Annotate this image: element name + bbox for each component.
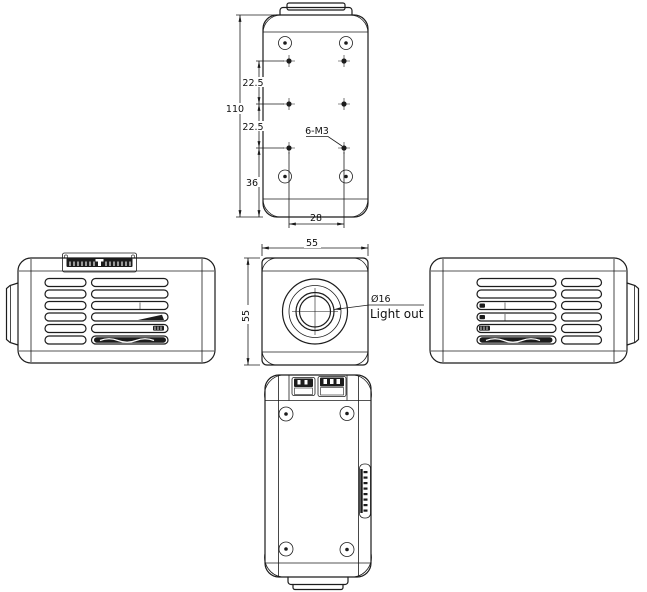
dim-110: 110 (226, 104, 244, 115)
front-view: 55 55 Ø16 Light out (241, 238, 424, 365)
chamfer-lines (265, 376, 371, 576)
m3-hole (283, 55, 295, 67)
lens-cap-outline (287, 3, 345, 10)
light-out-label: Light out (370, 307, 424, 321)
right-side-view (430, 258, 639, 363)
vent-slots (477, 279, 602, 345)
left-side-view (7, 253, 216, 363)
top-view-dimensions: 110 22.5 22.5 36 28 6-M3 (226, 15, 344, 228)
lens-bump (627, 283, 639, 345)
thread-callout: 6-M3 (305, 126, 329, 137)
lens-bump (7, 283, 19, 345)
dim-22-5-a: 22.5 (242, 78, 263, 89)
lens-cap-outline (293, 585, 343, 590)
screw-holes (279, 407, 354, 557)
dim-55-height: 55 (241, 310, 252, 322)
chamfer-lines (431, 259, 626, 362)
dim-22-5-b: 22.5 (242, 122, 263, 133)
vent-internal-details (94, 303, 166, 343)
light-aperture (283, 279, 348, 344)
lens-base-outline (288, 577, 348, 585)
bottom-view (265, 375, 372, 590)
vent-internal-details (479, 303, 553, 343)
m3-hole (338, 55, 350, 67)
right-view-body (430, 258, 627, 363)
m3-hole (338, 98, 350, 110)
lens-base-outline (280, 8, 352, 16)
bottom-view-body (265, 375, 371, 577)
dim-55-width: 55 (306, 238, 318, 249)
m3-hole (283, 98, 295, 110)
corner-chamfer-arcs (265, 375, 372, 577)
dim-36: 36 (246, 178, 258, 189)
rear-connectors (292, 377, 346, 397)
front-view-dimensions: 55 55 Ø16 Light out (241, 238, 424, 365)
left-view-body (18, 258, 215, 363)
side-port-slot (360, 464, 371, 518)
engineering-drawing: 110 22.5 22.5 36 28 6-M3 (0, 0, 647, 592)
top-view: 110 22.5 22.5 36 28 6-M3 (226, 3, 368, 228)
dim-28: 28 (310, 213, 322, 224)
vent-slots (45, 279, 168, 345)
centerlines (292, 288, 338, 335)
m3-holes (283, 55, 350, 154)
top-connector (63, 253, 137, 272)
drawing-canvas: 110 22.5 22.5 36 28 6-M3 (0, 0, 647, 592)
aperture-diameter-label: Ø16 (371, 294, 391, 305)
chamfer-lines (19, 259, 214, 362)
